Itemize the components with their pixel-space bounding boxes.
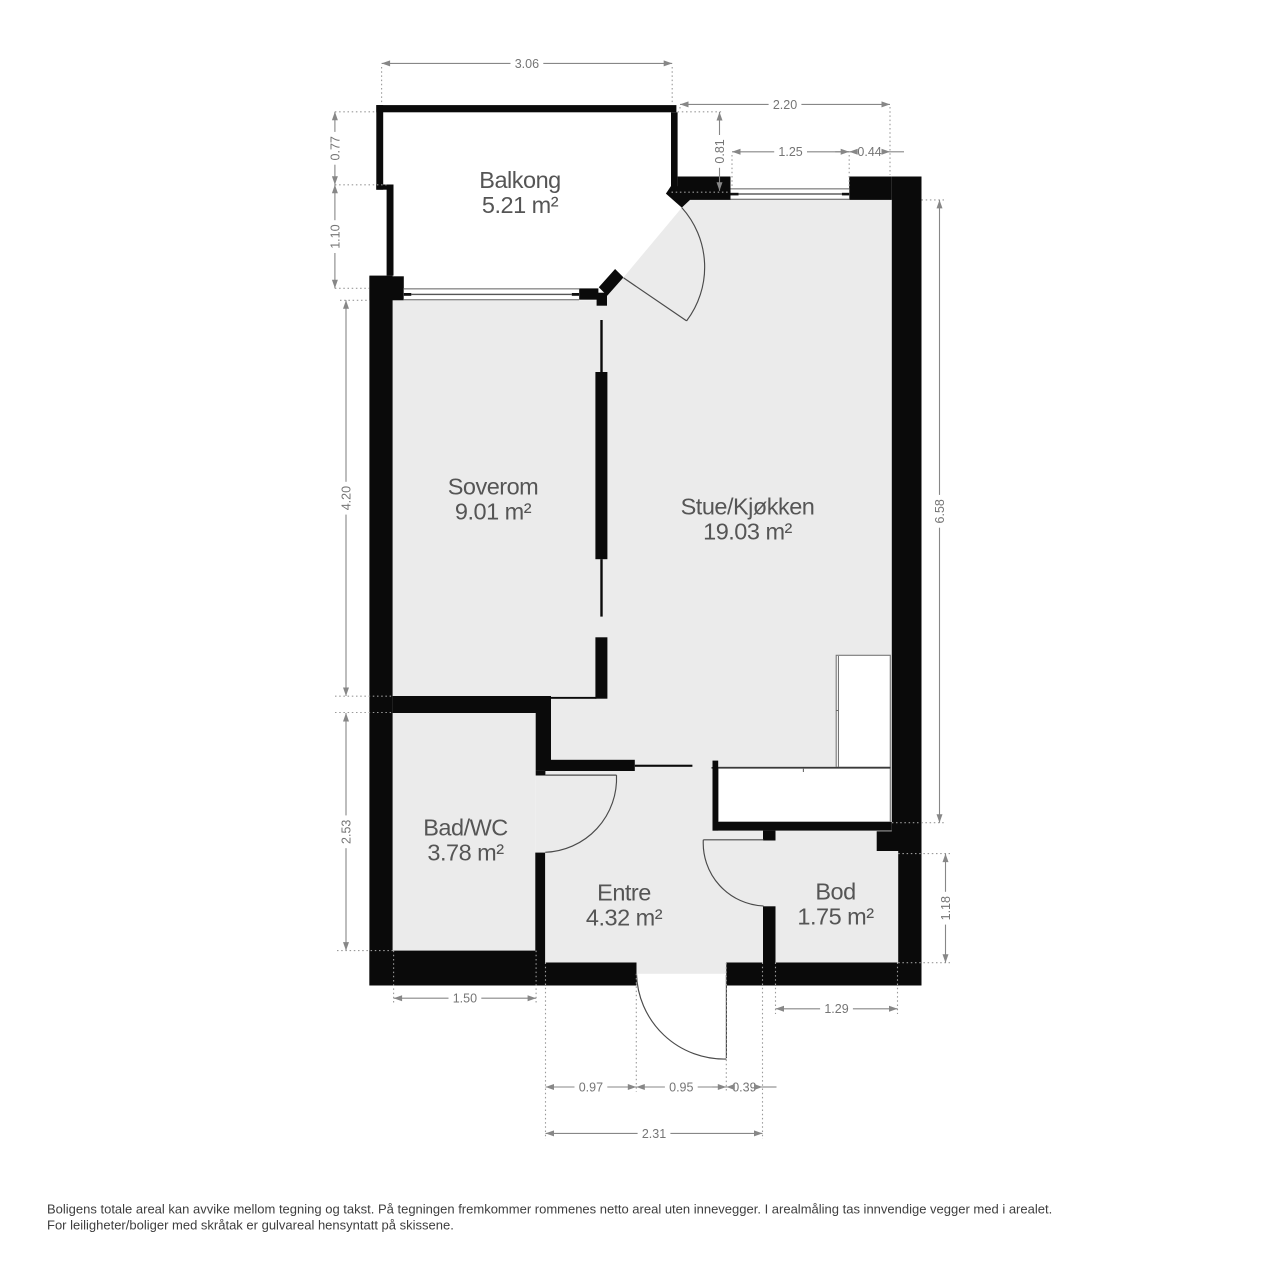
svg-text:6.58: 6.58 bbox=[933, 499, 947, 523]
svg-text:2.31: 2.31 bbox=[642, 1127, 666, 1141]
svg-text:1.25: 1.25 bbox=[778, 145, 802, 159]
svg-text:Stue/Kjøkken: Stue/Kjøkken bbox=[681, 494, 815, 520]
svg-text:For leiligheter/boliger med sk: For leiligheter/boliger med skråtak er g… bbox=[47, 1218, 454, 1233]
svg-text:9.01 m²: 9.01 m² bbox=[455, 499, 532, 525]
svg-text:2.20: 2.20 bbox=[773, 98, 797, 112]
svg-text:Bad/WC: Bad/WC bbox=[423, 815, 508, 841]
svg-text:3.78 m²: 3.78 m² bbox=[427, 840, 504, 866]
svg-text:3.06: 3.06 bbox=[515, 57, 539, 71]
svg-text:0.97: 0.97 bbox=[579, 1080, 603, 1094]
svg-text:Bod: Bod bbox=[815, 879, 855, 905]
svg-text:0.81: 0.81 bbox=[713, 139, 727, 163]
svg-text:5.21 m²: 5.21 m² bbox=[482, 192, 559, 218]
svg-text:0.39: 0.39 bbox=[732, 1080, 756, 1094]
svg-text:Boligens totale areal kan avvi: Boligens totale areal kan avvike mellom … bbox=[47, 1202, 1052, 1217]
svg-text:Balkong: Balkong bbox=[479, 167, 560, 193]
svg-text:0.95: 0.95 bbox=[669, 1080, 693, 1094]
svg-text:Soverom: Soverom bbox=[448, 474, 539, 500]
svg-text:4.20: 4.20 bbox=[339, 486, 353, 510]
svg-text:1.75 m²: 1.75 m² bbox=[797, 904, 874, 930]
svg-text:2.53: 2.53 bbox=[339, 820, 353, 844]
svg-text:1.18: 1.18 bbox=[939, 896, 953, 920]
svg-text:1.50: 1.50 bbox=[453, 992, 477, 1006]
svg-text:1.10: 1.10 bbox=[328, 224, 342, 248]
svg-text:0.44: 0.44 bbox=[857, 145, 881, 159]
svg-text:4.32 m²: 4.32 m² bbox=[586, 905, 663, 931]
svg-text:1.29: 1.29 bbox=[824, 1002, 848, 1016]
svg-text:Entre: Entre bbox=[597, 880, 651, 906]
svg-text:0.77: 0.77 bbox=[328, 136, 342, 160]
svg-text:19.03 m²: 19.03 m² bbox=[703, 519, 792, 545]
